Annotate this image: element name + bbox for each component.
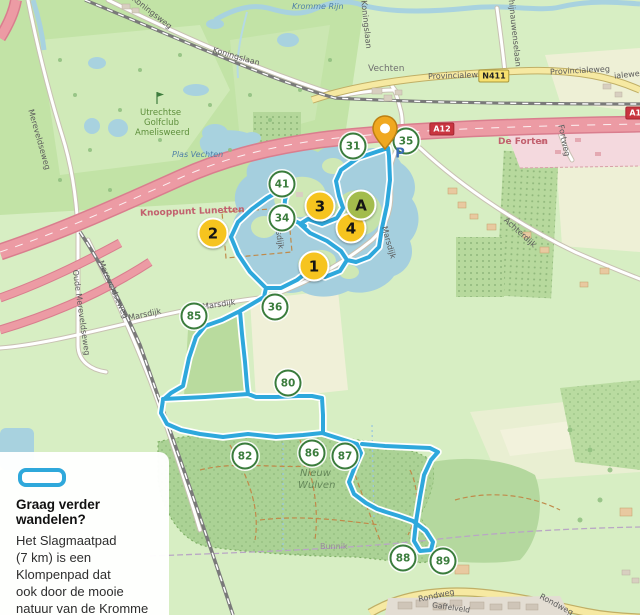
- legend-panel: Graag verder wandelen? Het Slagmaatpad (…: [0, 452, 169, 615]
- legend-line-4: ook door de mooie: [16, 583, 159, 600]
- route-marker-a[interactable]: A: [346, 190, 377, 221]
- route-marker-1[interactable]: 1: [299, 251, 330, 282]
- junction-marker-88[interactable]: 88: [390, 545, 417, 572]
- junction-marker-31[interactable]: 31: [340, 133, 367, 160]
- map-canvas[interactable]: Koningsweg Koningslaan Koningslaan Kromm…: [0, 0, 640, 615]
- route-marker-3[interactable]: 3: [305, 191, 336, 222]
- parking-label: P: [395, 147, 405, 162]
- legend-line-1: Het Slagmaatpad: [16, 532, 159, 549]
- junction-marker-85[interactable]: 85: [181, 303, 208, 330]
- junction-marker-86[interactable]: 86: [299, 440, 326, 467]
- motorway-badge-a12: A12: [429, 123, 454, 136]
- junction-marker-41[interactable]: 41: [269, 171, 296, 198]
- legend-line-2: (7 km) is een: [16, 549, 159, 566]
- provincial-badge-n411: N411: [478, 70, 509, 83]
- junction-marker-80[interactable]: 80: [275, 370, 302, 397]
- junction-marker-34[interactable]: 34: [269, 205, 296, 232]
- motorway-badge-a12-right: A12: [625, 107, 640, 120]
- junction-marker-87[interactable]: 87: [332, 443, 359, 470]
- junction-marker-36[interactable]: 36: [262, 294, 289, 321]
- legend-line-3: Klompenpad dat: [16, 566, 159, 583]
- junction-marker-82[interactable]: 82: [232, 443, 259, 470]
- route-marker-2[interactable]: 2: [198, 218, 229, 249]
- legend-title: Graag verder wandelen?: [16, 497, 159, 527]
- junction-marker-89[interactable]: 89: [430, 548, 457, 575]
- legend-line-5: natuur van de Kromme: [16, 600, 159, 615]
- route-line-sample: [18, 468, 66, 487]
